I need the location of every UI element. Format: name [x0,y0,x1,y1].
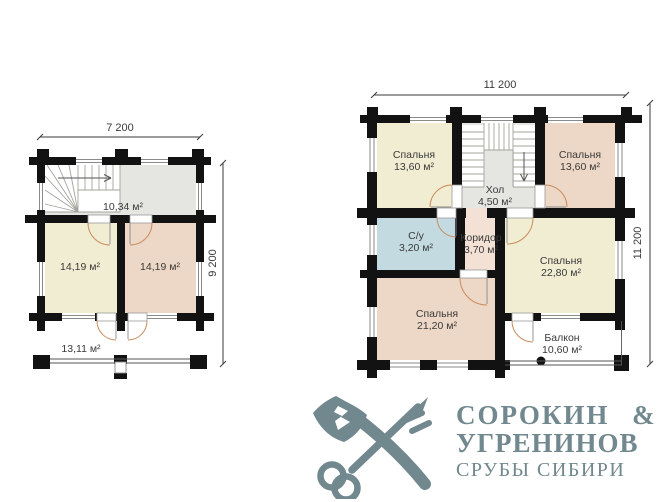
label-bedroom-tr-area: 13,60 м² [560,161,600,173]
terrace-post-right [190,355,207,369]
label-terrace-area: 13,11 м² [61,343,101,355]
label-hall-area: 10,34 м² [103,201,143,213]
label-hall-name: Хол [486,184,505,196]
label-bedroom-bottom-area: 21,20 м² [417,320,457,332]
dim-label-9200: 9 200 [207,249,219,277]
label-bedroom-right-name: Спальня [540,255,582,267]
dimension-right-width: 11 200 [371,79,629,98]
dim-label-11200-side: 11 200 [632,227,644,260]
label-bedroom-tl-name: Спальня [393,149,435,161]
label-balcony-area: 10,60 м² [542,344,582,356]
label-bedroom-bottom-name: Спальня [416,308,458,320]
logo-text-block: СОРОКИН & УГРЕНИНОВ СРУБЫ СИБИРИ [456,401,660,483]
corridor-passage [466,208,487,218]
dimension-right-height: 11 200 [632,100,653,367]
label-bathroom-name: С/у [408,230,425,242]
label-bedroom-tl-area: 13,60 м² [394,161,434,173]
label-corridor-area: 3,70 м² [464,244,499,256]
dim-label-7200: 7 200 [106,122,134,134]
label-room-left-area: 14,19 м² [60,261,100,273]
floorplan-left: 10,34 м² 14,19 м² 14,19 м² 13,11 м² 7 20… [25,122,226,379]
dimension-left-width: 7 200 [37,122,203,140]
label-bedroom-tr-name: Спальня [559,149,601,161]
logo-line3: СРУБЫ СИБИРИ [456,458,660,483]
terrace-column-base [115,362,126,373]
dimension-left-height: 9 200 [207,160,226,367]
floorplan-page: 10,34 м² 14,19 м² 14,19 м² 13,11 м² 7 20… [0,0,667,502]
staircase-right-plan [462,123,535,187]
logo-line2: УГРЕНИНОВ [456,429,660,458]
terrace-post-left [33,355,50,369]
label-bathroom-area: 3,20 м² [399,242,434,254]
label-room-right-area: 14,19 м² [140,261,180,273]
label-corridor-name: Коридор [460,232,502,244]
dim-label-11200-top: 11 200 [484,79,517,91]
label-bedroom-right-area: 22,80 м² [541,267,581,279]
axe-icon [313,396,425,484]
label-balcony-name: Балкон [544,332,579,344]
floorplan-right: Спальня 13,60 м² Спальня 13,60 м² Хол 4,… [357,79,653,378]
logo-line1: СОРОКИН & [456,401,660,429]
axe-and-key-icon [310,394,450,499]
label-hall-area: 4,50 м² [478,196,513,208]
